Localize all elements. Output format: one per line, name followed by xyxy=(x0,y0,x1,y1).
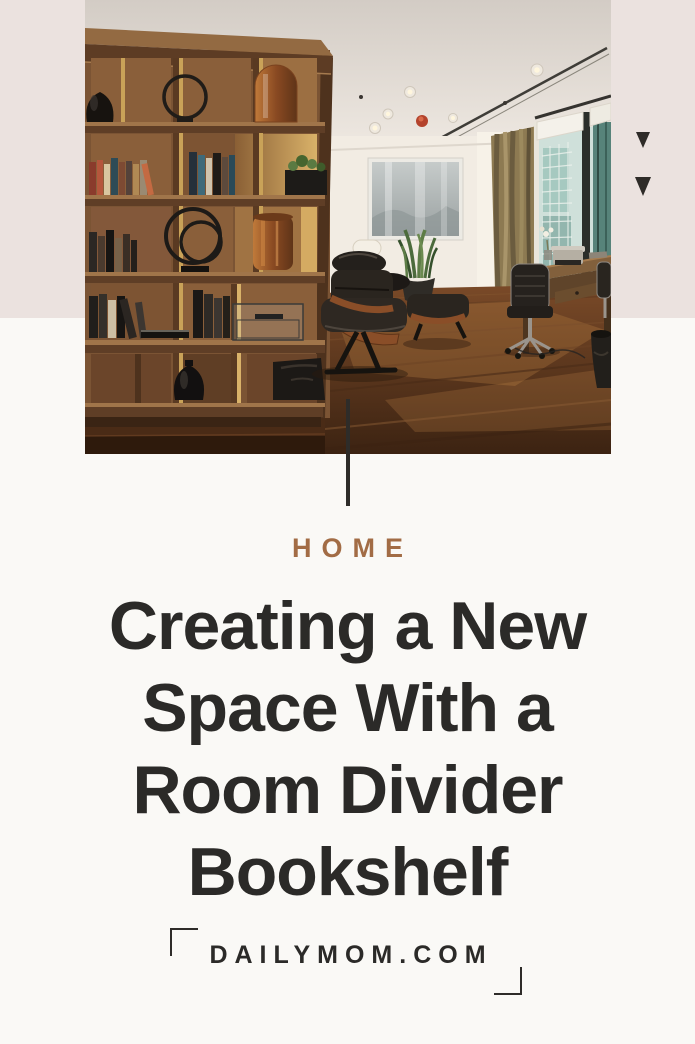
site-url: DAILYMOM.COM xyxy=(0,941,695,970)
title-line: Space With a xyxy=(142,670,553,746)
framed-artwork xyxy=(368,158,463,240)
article-title: Creating a New Space With a Room Divider… xyxy=(0,585,695,913)
triangle-down-icon xyxy=(636,132,650,148)
corner-bracket-bottom-right xyxy=(494,967,522,995)
category-label: HOME xyxy=(0,533,695,564)
books-row xyxy=(89,230,137,272)
article-photo xyxy=(85,0,611,454)
amber-glass-vase xyxy=(253,213,293,270)
typewriter xyxy=(551,246,585,265)
fire-alarm xyxy=(416,115,428,127)
vertical-divider-line xyxy=(346,399,350,506)
interior-photo-illustration xyxy=(85,0,611,454)
amber-glass-jar xyxy=(255,65,297,122)
pin-graphic: HOME Creating a New Space With a Room Di… xyxy=(0,0,695,1044)
leather-bin xyxy=(273,358,325,400)
title-line: Creating a New xyxy=(109,588,586,664)
glass-display-case xyxy=(233,304,303,340)
title-line: Room Divider xyxy=(132,752,562,828)
title-line: Bookshelf xyxy=(188,834,508,910)
triangle-down-icon xyxy=(635,177,651,196)
room-divider-bookshelf xyxy=(85,28,333,427)
